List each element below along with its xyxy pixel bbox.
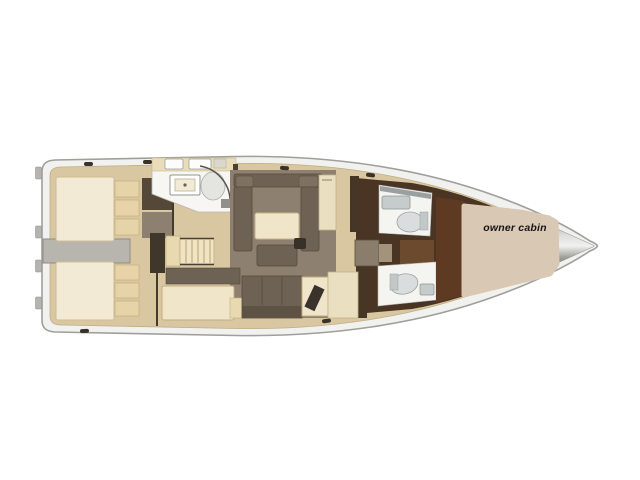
- owner-cabin-step: [379, 244, 392, 262]
- galley-sink: [165, 159, 183, 169]
- owner-cabin-door: [400, 240, 434, 264]
- owner-cabin-annotation: owner cabin: [464, 206, 557, 295]
- bed-cushion: [115, 301, 139, 316]
- bed-cushion: [115, 181, 139, 197]
- double-bed: [56, 262, 114, 320]
- stair-landing: [166, 236, 180, 266]
- bed-cushion: [115, 283, 139, 298]
- bed-cushion: [115, 219, 139, 235]
- forward-head-port: [379, 185, 432, 236]
- salon-table: [255, 213, 299, 239]
- sofa-cushion: [236, 176, 253, 187]
- stern-fitting: [36, 226, 42, 238]
- stern-fitting: [36, 260, 42, 272]
- stern-fitting: [36, 297, 42, 309]
- forward-wall: [358, 266, 367, 318]
- bed-cushion: [115, 200, 139, 216]
- bed-cushion: [115, 265, 139, 280]
- owner-cabin-step: [355, 240, 379, 266]
- dinette-left-bench: [234, 187, 252, 251]
- forward-cabinet: [328, 272, 358, 318]
- head-sink: [382, 196, 410, 209]
- companionway-stairs: [180, 239, 214, 264]
- nav-bench: [166, 268, 240, 284]
- toilet-tank: [420, 212, 428, 230]
- mast-post: [294, 238, 306, 249]
- cleat: [84, 162, 93, 166]
- counter-fixture: [214, 159, 226, 168]
- nav-desk: [162, 286, 234, 320]
- toilet-tank: [390, 274, 398, 290]
- stove-burner: [183, 183, 186, 186]
- sofa-back: [242, 306, 302, 318]
- forward-wall: [350, 176, 359, 232]
- stern-fitting: [36, 167, 42, 179]
- owner-cabin-floor: [436, 197, 464, 303]
- forward-head-starboard: [378, 262, 436, 306]
- engine-box: [150, 233, 165, 273]
- cleat: [80, 329, 89, 333]
- cleat: [280, 166, 289, 171]
- aft-walkway: [43, 239, 130, 263]
- toilet: [397, 212, 423, 232]
- ottoman: [257, 245, 297, 266]
- shower-tray: [201, 172, 225, 200]
- cabinet-divider: [319, 175, 336, 230]
- yacht-floor-plan-image: owner cabin: [0, 0, 640, 480]
- head-sink: [420, 284, 434, 295]
- sofa-cushion: [299, 176, 318, 187]
- owner-cabin-label: owner cabin: [483, 222, 546, 234]
- owner-cabin-overlay: [464, 206, 557, 295]
- double-bed: [56, 177, 114, 241]
- cleat: [143, 160, 152, 164]
- yacht-floor-plan: owner cabin: [0, 0, 640, 480]
